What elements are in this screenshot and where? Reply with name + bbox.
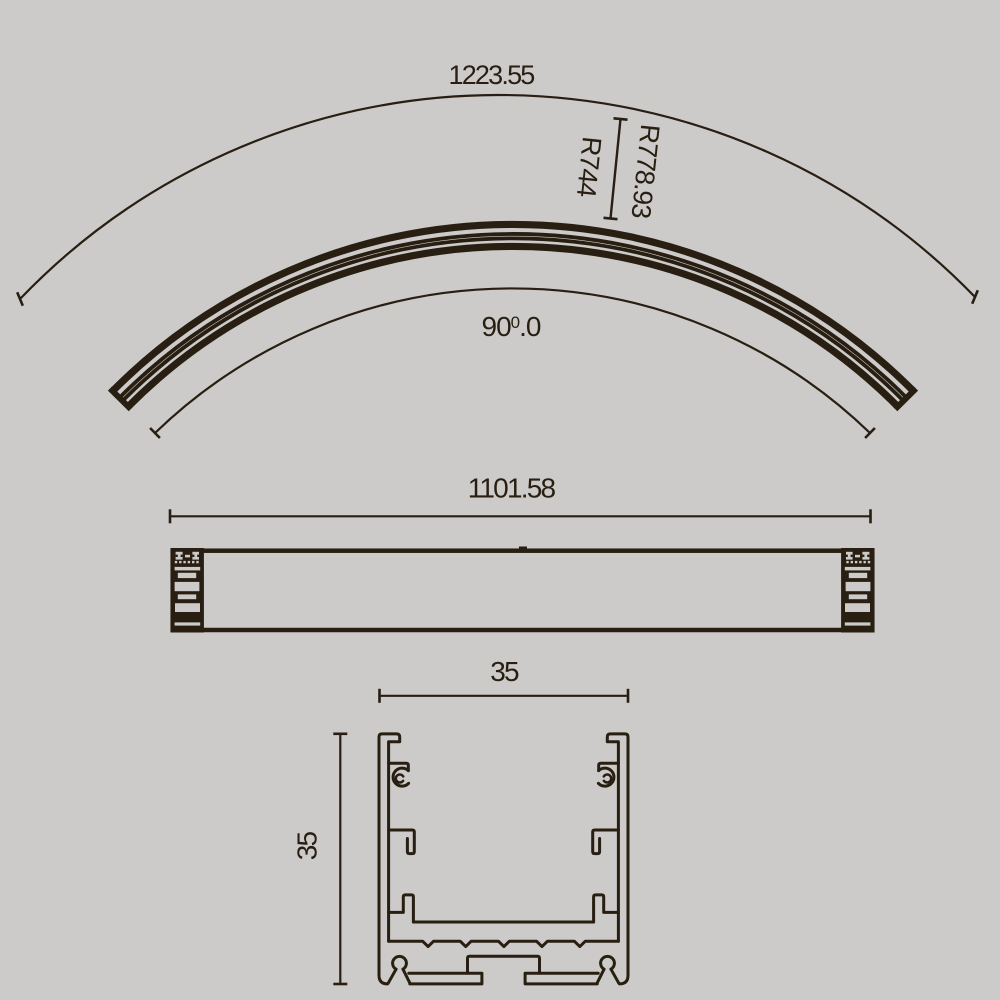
svg-text:35: 35: [490, 656, 519, 687]
svg-text:35: 35: [292, 832, 323, 861]
svg-text:1223.55: 1223.55: [449, 60, 535, 90]
svg-text:R744: R744: [571, 135, 607, 199]
svg-text:1101.58: 1101.58: [468, 473, 556, 504]
